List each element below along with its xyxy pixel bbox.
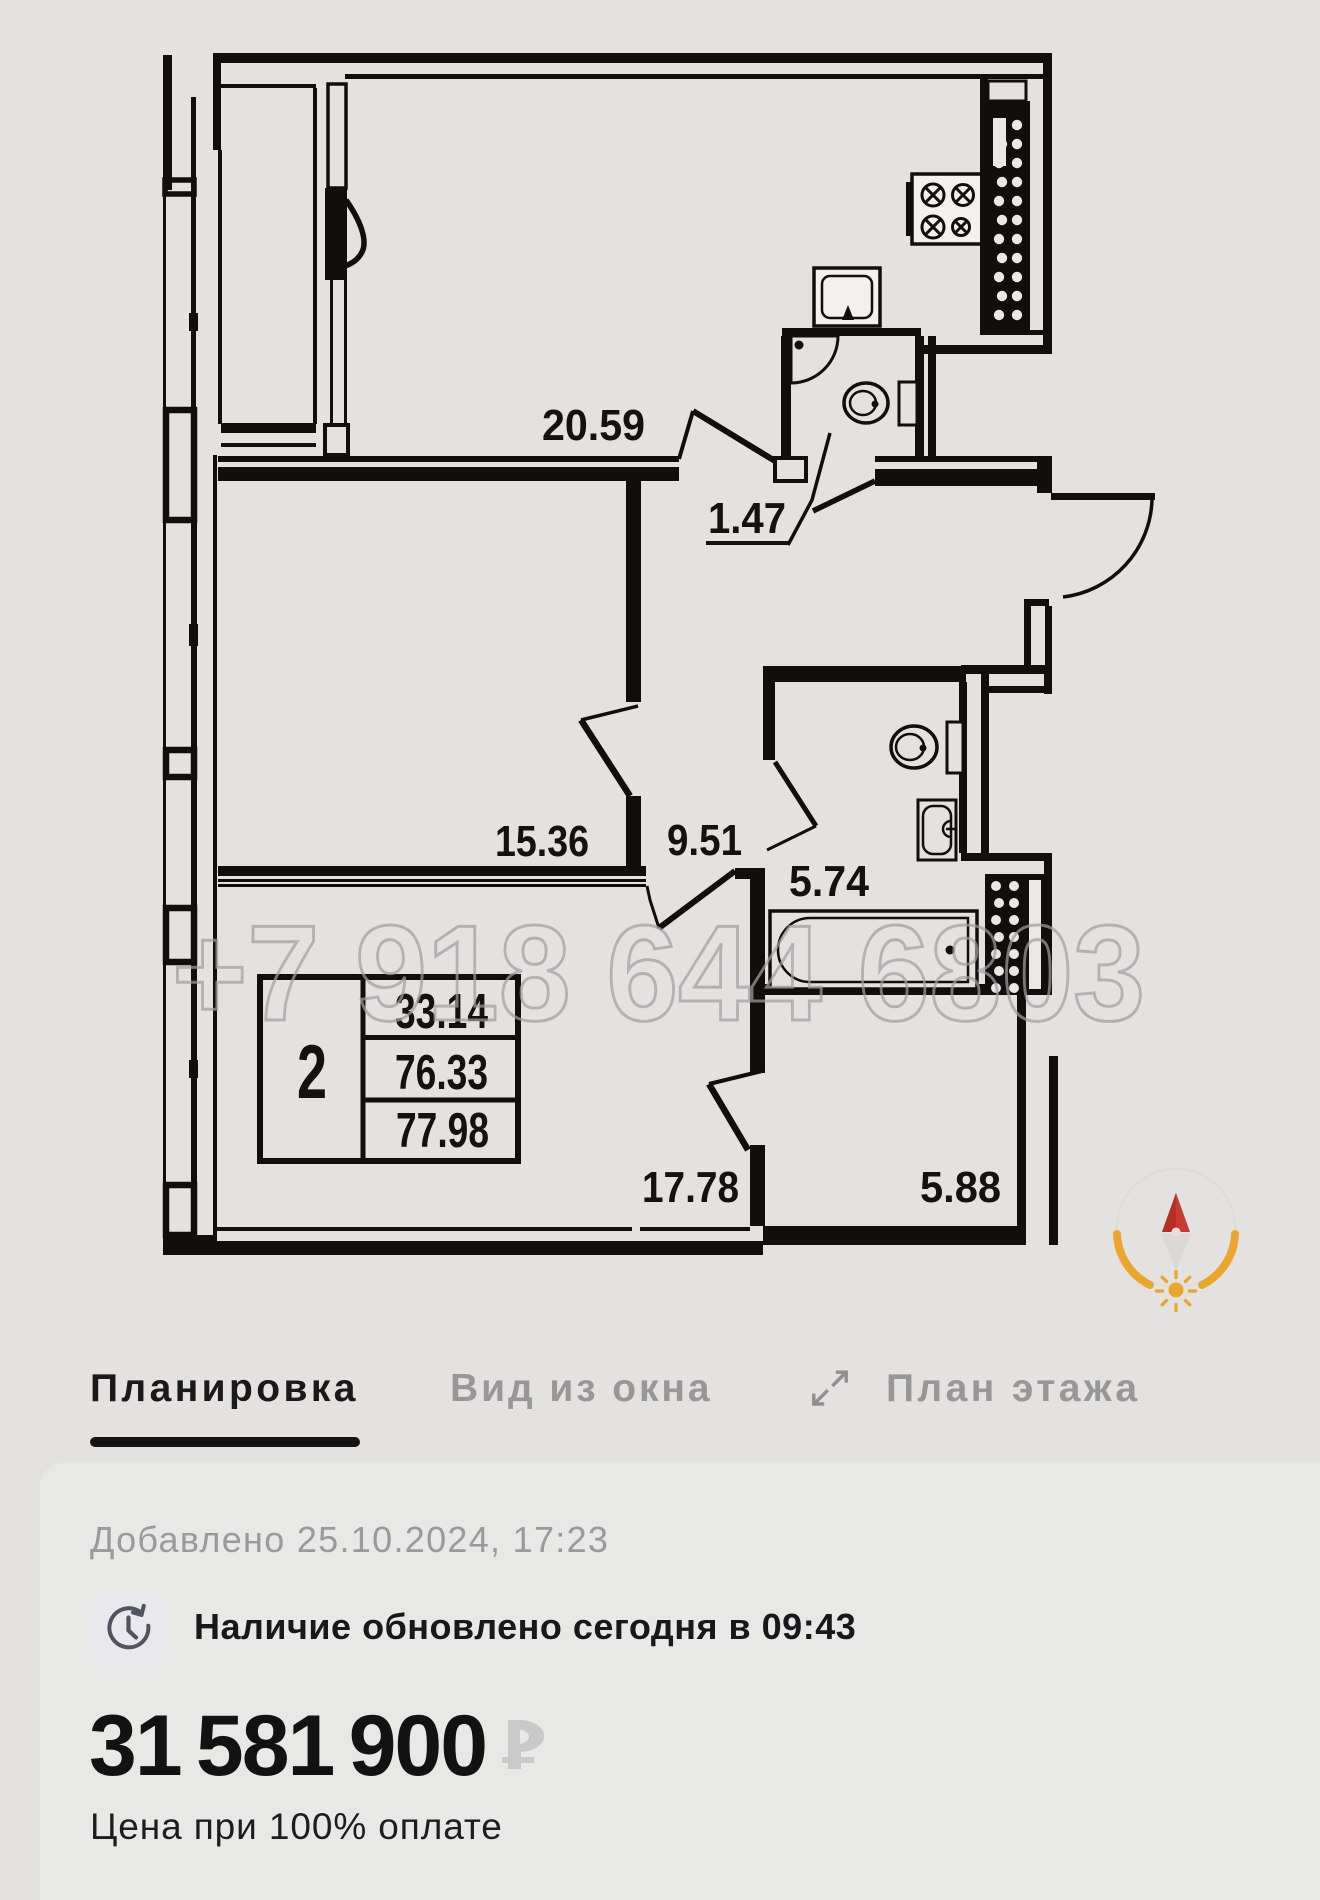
svg-text:1.47: 1.47 [708, 494, 786, 543]
svg-text:15.36: 15.36 [495, 817, 589, 866]
svg-text:76.33: 76.33 [395, 1046, 488, 1100]
svg-text:+7 918 644 6803: +7 918 644 6803 [172, 897, 1145, 1049]
svg-text:17.78: 17.78 [642, 1163, 739, 1212]
svg-text:20.59: 20.59 [542, 401, 645, 450]
svg-text:77.98: 77.98 [396, 1104, 489, 1158]
svg-text:5.88: 5.88 [920, 1163, 1001, 1212]
svg-text:9.51: 9.51 [667, 816, 742, 865]
